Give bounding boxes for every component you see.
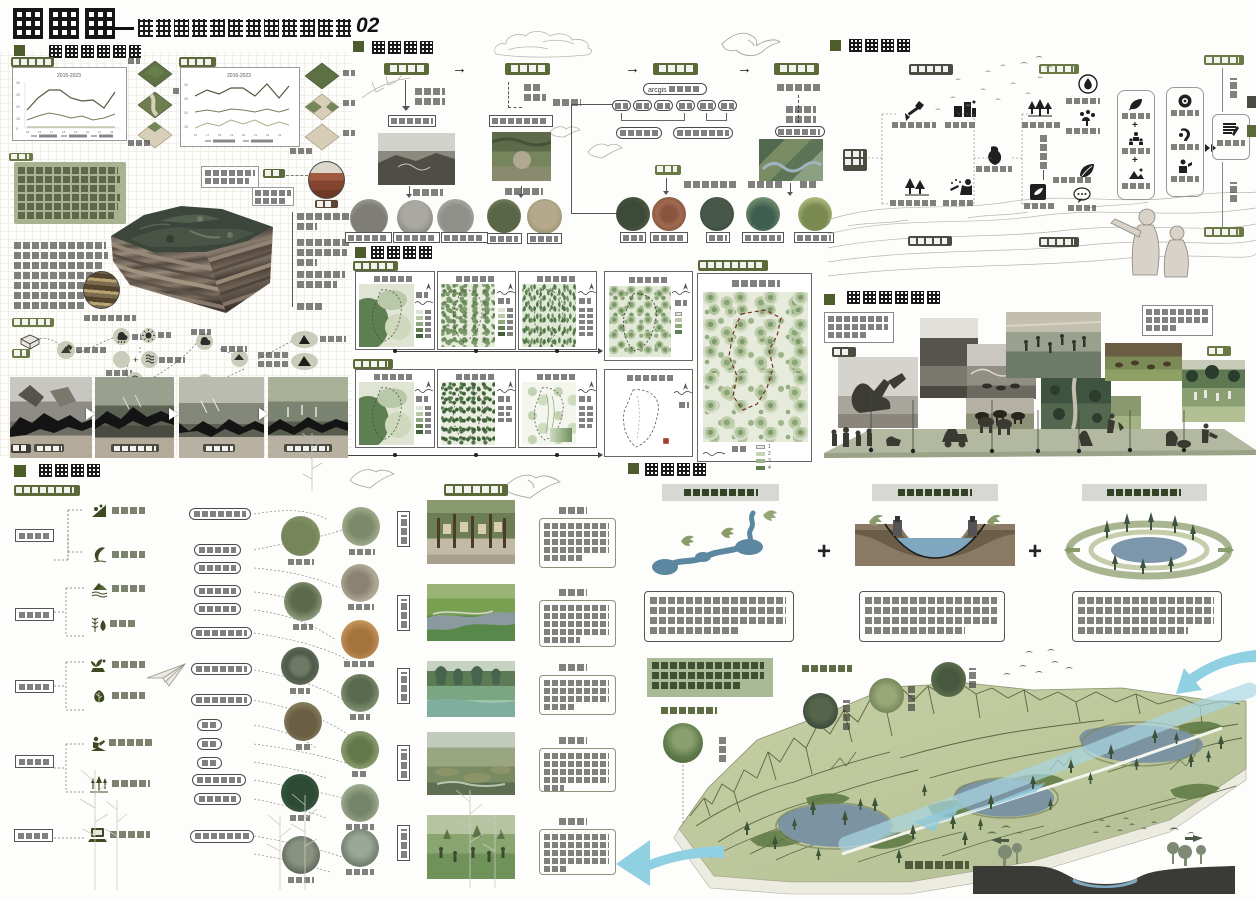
svg-text:16: 16 xyxy=(194,133,198,137)
svg-text:20: 20 xyxy=(86,130,90,134)
svg-text:15: 15 xyxy=(184,125,188,129)
svg-text:25: 25 xyxy=(16,93,20,97)
svg-text:20: 20 xyxy=(184,111,188,115)
svg-text:17: 17 xyxy=(50,130,54,134)
svg-text:0: 0 xyxy=(16,127,18,131)
svg-text:2015-2023: 2015-2023 xyxy=(57,73,81,79)
svg-text:19: 19 xyxy=(74,130,78,134)
svg-text:21: 21 xyxy=(254,133,258,137)
svg-text:30: 30 xyxy=(16,81,20,85)
svg-text:23: 23 xyxy=(278,133,282,137)
svg-text:2016-2023: 2016-2023 xyxy=(227,73,251,79)
svg-text:18: 18 xyxy=(218,133,222,137)
svg-text:17: 17 xyxy=(206,133,210,137)
svg-text:15: 15 xyxy=(16,117,20,121)
svg-text:19: 19 xyxy=(230,133,234,137)
svg-text:22: 22 xyxy=(266,133,270,137)
svg-text:22: 22 xyxy=(110,130,114,134)
svg-text:30: 30 xyxy=(184,83,188,87)
svg-text:16: 16 xyxy=(38,130,42,134)
svg-text:21: 21 xyxy=(98,130,102,134)
svg-text:20: 20 xyxy=(242,133,246,137)
svg-text:18: 18 xyxy=(62,130,66,134)
svg-text:20: 20 xyxy=(16,105,20,109)
svg-text:25: 25 xyxy=(184,97,188,101)
svg-text:15: 15 xyxy=(26,130,30,134)
